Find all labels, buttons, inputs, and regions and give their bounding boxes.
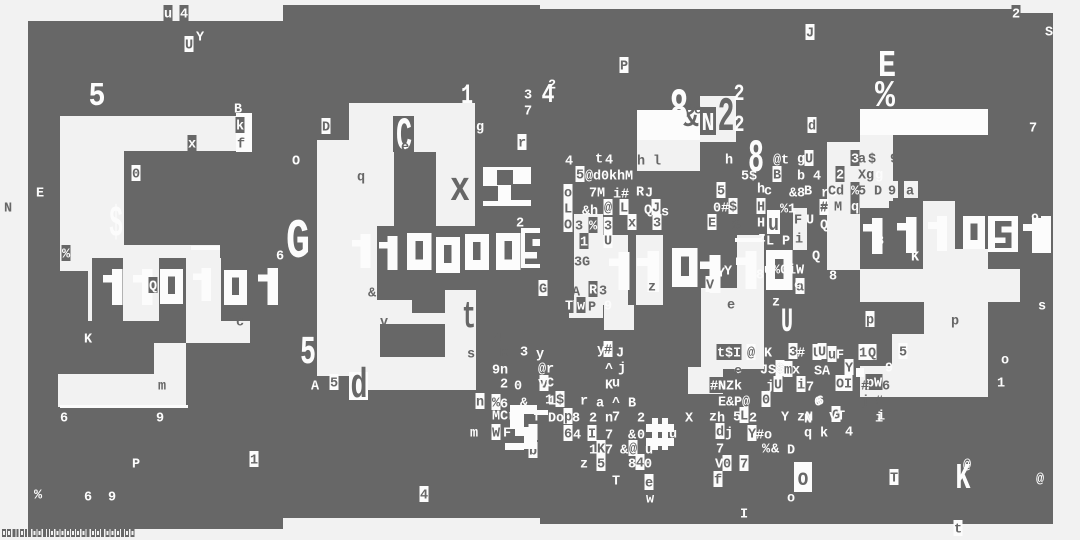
svg-text:c: c xyxy=(794,279,802,294)
svg-text:#: # xyxy=(875,395,883,410)
svg-text:T: T xyxy=(565,300,573,315)
svg-text:z: z xyxy=(772,296,780,311)
svg-text:i: i xyxy=(613,188,621,203)
svg-text:R: R xyxy=(636,186,645,201)
svg-text:B: B xyxy=(628,397,636,412)
svg-text:8: 8 xyxy=(670,81,689,142)
svg-text:Q: Q xyxy=(149,280,157,295)
svg-text:d: d xyxy=(593,170,601,185)
svg-text:O: O xyxy=(292,155,300,170)
svg-text:@: @ xyxy=(773,154,781,169)
svg-text:2: 2 xyxy=(589,412,597,427)
svg-text:3: 3 xyxy=(520,346,528,361)
svg-text:@: @ xyxy=(629,443,637,458)
svg-text:#: # xyxy=(861,380,869,395)
svg-text:6: 6 xyxy=(882,380,890,395)
svg-text:D: D xyxy=(787,444,795,459)
svg-text:e: e xyxy=(694,104,702,119)
svg-text:d: d xyxy=(351,362,368,410)
svg-text:#: # xyxy=(756,429,764,444)
svg-text:n: n xyxy=(605,412,613,427)
svg-text:Y: Y xyxy=(724,265,733,280)
svg-text:I: I xyxy=(588,428,596,443)
svg-text:i: i xyxy=(795,233,803,248)
svg-text:N: N xyxy=(804,413,812,428)
svg-text:x: x xyxy=(792,364,800,379)
svg-text:9: 9 xyxy=(890,153,898,168)
svg-text:r: r xyxy=(546,363,554,378)
svg-text:g: g xyxy=(875,169,883,184)
svg-text:L: L xyxy=(564,203,572,218)
svg-text:E: E xyxy=(708,217,716,232)
svg-text:O: O xyxy=(564,219,572,234)
svg-text:F: F xyxy=(794,214,802,229)
svg-text:s: s xyxy=(1038,300,1046,315)
svg-text:N: N xyxy=(718,380,726,395)
svg-text:$: $ xyxy=(749,170,757,185)
svg-text:g: g xyxy=(866,169,874,184)
svg-text:x: x xyxy=(628,217,636,232)
svg-text:v: v xyxy=(380,316,388,331)
svg-text:F: F xyxy=(836,349,844,364)
svg-text:o: o xyxy=(1001,354,1009,369)
svg-text:R: R xyxy=(589,284,598,299)
svg-text:E: E xyxy=(718,396,726,411)
svg-text:f: f xyxy=(237,138,245,153)
svg-text:u: u xyxy=(612,377,620,392)
svg-text:4: 4 xyxy=(605,154,613,169)
svg-text:c: c xyxy=(764,185,772,200)
svg-text:g: g xyxy=(476,121,484,136)
svg-text:q: q xyxy=(804,427,812,442)
svg-text:$: $ xyxy=(868,153,876,168)
svg-text:h: h xyxy=(637,155,645,170)
svg-text:z: z xyxy=(709,411,717,426)
svg-text:&: & xyxy=(620,444,629,459)
svg-text:r: r xyxy=(518,137,526,152)
svg-text:g: g xyxy=(797,153,805,168)
svg-text:7: 7 xyxy=(524,105,532,120)
svg-text:8: 8 xyxy=(628,458,636,473)
svg-text:i: i xyxy=(788,264,796,279)
svg-text:4: 4 xyxy=(573,429,581,444)
svg-text:M: M xyxy=(834,201,842,216)
svg-text:S: S xyxy=(1045,26,1053,41)
svg-text:L: L xyxy=(740,410,748,425)
svg-text:4: 4 xyxy=(494,332,502,347)
svg-text:2: 2 xyxy=(548,79,556,94)
svg-text:w: w xyxy=(646,493,655,508)
svg-text:m: m xyxy=(158,380,166,395)
svg-text:e: e xyxy=(727,299,735,314)
svg-text:T: T xyxy=(890,472,898,487)
svg-text:k: k xyxy=(609,170,617,185)
svg-text:U: U xyxy=(781,304,793,342)
svg-text:j: j xyxy=(766,380,774,395)
svg-text:%: % xyxy=(762,443,771,458)
svg-text:o: o xyxy=(556,412,564,427)
svg-text:7: 7 xyxy=(716,443,724,458)
svg-text:5: 5 xyxy=(717,185,725,200)
svg-text:P: P xyxy=(620,60,628,75)
svg-text:F: F xyxy=(503,427,511,442)
svg-text:H: H xyxy=(757,201,765,216)
svg-text:A: A xyxy=(311,380,320,395)
svg-text:A: A xyxy=(572,286,581,301)
svg-text:h: h xyxy=(590,205,598,220)
svg-text:Y: Y xyxy=(196,31,205,46)
svg-text:D: D xyxy=(322,121,330,136)
svg-text:W: W xyxy=(492,427,501,442)
svg-text:3: 3 xyxy=(524,89,532,104)
svg-text:M: M xyxy=(597,187,605,202)
svg-text:K: K xyxy=(84,333,93,348)
svg-text:K: K xyxy=(911,251,920,266)
svg-text:7: 7 xyxy=(806,381,814,396)
svg-text:7: 7 xyxy=(612,411,620,426)
svg-text:M: M xyxy=(492,410,500,425)
svg-text:5: 5 xyxy=(858,185,866,200)
svg-text:h: h xyxy=(617,170,625,185)
svg-text:n: n xyxy=(500,364,508,379)
svg-text:9: 9 xyxy=(108,491,116,506)
svg-text:s: s xyxy=(661,206,669,221)
svg-text:O: O xyxy=(836,378,844,393)
svg-text:5: 5 xyxy=(300,331,316,376)
svg-text:$: $ xyxy=(725,347,733,362)
svg-text:1: 1 xyxy=(548,395,556,410)
svg-text:z: z xyxy=(758,232,766,247)
svg-text:r: r xyxy=(580,395,588,410)
svg-text:t: t xyxy=(717,347,725,362)
svg-text:4: 4 xyxy=(420,489,428,504)
svg-text:2: 2 xyxy=(749,412,757,427)
svg-text:3: 3 xyxy=(599,285,607,300)
svg-text:f: f xyxy=(714,474,722,489)
svg-text:&: & xyxy=(771,443,780,458)
svg-text:t: t xyxy=(954,523,962,538)
svg-text:5: 5 xyxy=(899,346,907,361)
svg-text:B: B xyxy=(773,169,781,184)
svg-text:J: J xyxy=(616,347,624,362)
svg-text:6: 6 xyxy=(276,250,284,265)
svg-text:2: 2 xyxy=(500,378,508,393)
svg-text:t: t xyxy=(462,296,476,339)
svg-text:0: 0 xyxy=(762,394,770,409)
svg-text:h: h xyxy=(717,412,725,427)
svg-text:C: C xyxy=(500,410,508,425)
svg-text:Q: Q xyxy=(868,347,876,362)
svg-text:a: a xyxy=(858,153,866,168)
svg-text:&: & xyxy=(368,287,377,302)
svg-text:c: c xyxy=(236,316,244,331)
svg-text:G: G xyxy=(539,283,547,298)
svg-text:j: j xyxy=(725,427,733,442)
svg-text:l: l xyxy=(653,155,661,170)
svg-text:9: 9 xyxy=(492,364,500,379)
svg-text:o: o xyxy=(564,187,572,202)
svg-text:o: o xyxy=(798,466,809,492)
svg-text:v: v xyxy=(829,410,837,425)
svg-text:3: 3 xyxy=(575,220,583,235)
svg-text:q: q xyxy=(851,201,859,216)
svg-text:7: 7 xyxy=(1029,122,1037,137)
svg-text:6: 6 xyxy=(84,491,92,506)
svg-text:4: 4 xyxy=(180,8,188,23)
svg-text:i: i xyxy=(877,410,885,425)
svg-text:@: @ xyxy=(963,459,971,474)
svg-text:$: $ xyxy=(109,200,123,250)
svg-text:3: 3 xyxy=(789,346,797,361)
svg-text:0: 0 xyxy=(601,170,609,185)
svg-text:m: m xyxy=(470,427,478,442)
svg-text:e: e xyxy=(645,477,653,492)
svg-text:%: % xyxy=(589,220,598,235)
svg-text:h: h xyxy=(725,154,733,169)
svg-text:U: U xyxy=(805,153,813,168)
svg-text:9: 9 xyxy=(888,185,896,200)
svg-text:o: o xyxy=(764,429,772,444)
svg-text:@: @ xyxy=(747,347,755,362)
svg-text:0: 0 xyxy=(637,429,645,444)
svg-text:P: P xyxy=(782,235,790,250)
svg-text:%: % xyxy=(62,248,71,263)
svg-text:9: 9 xyxy=(885,362,893,377)
svg-text:j: j xyxy=(618,362,626,377)
svg-text:$: $ xyxy=(556,394,564,409)
svg-text:W: W xyxy=(796,264,805,279)
svg-text:Q: Q xyxy=(820,219,828,234)
svg-text:#: # xyxy=(797,347,805,362)
svg-text:m: m xyxy=(784,364,792,379)
svg-text:E: E xyxy=(36,187,44,202)
svg-text:7: 7 xyxy=(589,187,597,202)
svg-text:A: A xyxy=(822,365,831,380)
svg-text:i: i xyxy=(797,379,805,394)
svg-text:M: M xyxy=(625,170,633,185)
svg-text:^: ^ xyxy=(605,363,613,378)
svg-text:o: o xyxy=(787,492,795,507)
svg-text:C: C xyxy=(546,377,554,392)
svg-text:J: J xyxy=(760,364,768,379)
svg-text:U: U xyxy=(774,379,782,394)
svg-text:V: V xyxy=(715,458,724,473)
svg-text:%: % xyxy=(732,219,741,234)
svg-text:2: 2 xyxy=(1012,8,1020,23)
svg-text:d: d xyxy=(716,426,724,441)
svg-text:I: I xyxy=(844,378,852,393)
svg-text:J: J xyxy=(806,27,814,42)
svg-text:Y: Y xyxy=(781,411,790,426)
svg-text:P: P xyxy=(734,396,742,411)
svg-text:5: 5 xyxy=(330,377,338,392)
svg-text:B: B xyxy=(804,185,812,200)
svg-text:T: T xyxy=(837,410,845,425)
svg-text:%: % xyxy=(34,489,43,504)
svg-text:5: 5 xyxy=(576,169,584,184)
svg-text:s: s xyxy=(467,348,475,363)
svg-text:@: @ xyxy=(742,396,750,411)
svg-text:B: B xyxy=(234,103,242,118)
svg-text:q: q xyxy=(357,171,365,186)
svg-text:#: # xyxy=(621,188,629,203)
svg-text:Y: Y xyxy=(845,362,854,377)
svg-text:5: 5 xyxy=(741,170,749,185)
svg-text:U: U xyxy=(604,235,612,250)
svg-text:u: u xyxy=(828,349,836,364)
svg-text:J: J xyxy=(645,187,653,202)
svg-text:k: k xyxy=(734,380,742,395)
svg-text:8: 8 xyxy=(756,269,764,284)
svg-text:0: 0 xyxy=(132,168,140,183)
svg-text:Q: Q xyxy=(812,250,820,265)
svg-text:0: 0 xyxy=(723,458,731,473)
svg-text:1: 1 xyxy=(997,377,1005,392)
svg-text:p: p xyxy=(866,314,874,329)
svg-text:3: 3 xyxy=(574,256,582,271)
svg-text:3: 3 xyxy=(653,217,661,232)
svg-text:T: T xyxy=(612,475,620,490)
svg-text:S: S xyxy=(814,365,822,380)
svg-text:t: t xyxy=(781,154,789,169)
svg-text:9: 9 xyxy=(604,300,612,315)
svg-text:D: D xyxy=(874,185,882,200)
svg-text:I: I xyxy=(733,347,741,362)
svg-text:7: 7 xyxy=(740,458,748,473)
svg-text:t: t xyxy=(595,153,603,168)
svg-text:x: x xyxy=(450,165,470,213)
svg-text:d: d xyxy=(836,185,844,200)
svg-text:$: $ xyxy=(729,201,737,216)
svg-text:y: y xyxy=(597,344,605,359)
svg-text:#: # xyxy=(604,344,612,359)
svg-text:2: 2 xyxy=(836,169,844,184)
svg-text:s: s xyxy=(748,268,756,283)
svg-text:8: 8 xyxy=(797,187,805,202)
svg-text:a: a xyxy=(596,397,604,412)
svg-text:6: 6 xyxy=(814,396,822,411)
svg-text:1: 1 xyxy=(461,81,473,112)
svg-text:%: % xyxy=(875,75,895,118)
svg-text:4: 4 xyxy=(813,170,821,185)
svg-text:5: 5 xyxy=(89,78,106,115)
svg-text:P: P xyxy=(132,458,140,473)
svg-text:L: L xyxy=(620,202,628,217)
svg-text:D: D xyxy=(548,412,556,427)
svg-text:d: d xyxy=(808,120,816,135)
svg-text:8: 8 xyxy=(876,235,884,250)
svg-text:8: 8 xyxy=(572,412,580,427)
svg-text:4: 4 xyxy=(845,426,853,441)
svg-text:R: R xyxy=(500,347,509,362)
svg-text:u: u xyxy=(768,212,779,237)
svg-text:z: z xyxy=(580,458,588,473)
svg-text:9: 9 xyxy=(156,412,164,427)
svg-text:@: @ xyxy=(585,170,593,185)
svg-text:K: K xyxy=(764,347,773,362)
svg-text:4: 4 xyxy=(636,457,644,472)
svg-text:a: a xyxy=(906,185,914,200)
svg-text:b: b xyxy=(797,170,805,185)
svg-text:C: C xyxy=(828,185,836,200)
svg-text:j: j xyxy=(861,395,869,410)
svg-text:@: @ xyxy=(1036,473,1044,488)
svg-text:7: 7 xyxy=(605,444,613,459)
svg-text:x: x xyxy=(188,138,196,153)
svg-text:5: 5 xyxy=(597,458,605,473)
svg-text:5: 5 xyxy=(733,411,741,426)
svg-text:L: L xyxy=(766,235,774,250)
svg-text:N: N xyxy=(4,202,12,217)
svg-text:G: G xyxy=(286,210,310,274)
svg-text:#: # xyxy=(710,380,718,395)
svg-text:H: H xyxy=(757,217,765,232)
svg-text:Q: Q xyxy=(644,204,652,219)
svg-text:6: 6 xyxy=(564,428,572,443)
svg-text:1: 1 xyxy=(250,454,258,469)
svg-text:Z: Z xyxy=(726,380,734,395)
svg-text:1: 1 xyxy=(859,347,867,362)
svg-text:0: 0 xyxy=(644,458,652,473)
svg-text:n: n xyxy=(476,396,484,411)
svg-text:2: 2 xyxy=(734,81,745,107)
svg-text:&: & xyxy=(628,429,637,444)
svg-text:y: y xyxy=(536,348,544,363)
svg-text:S: S xyxy=(768,364,776,379)
svg-text:V: V xyxy=(706,279,715,294)
svg-text:U: U xyxy=(806,214,814,229)
svg-text:e: e xyxy=(734,365,742,380)
svg-text:z: z xyxy=(648,281,656,296)
svg-text:N: N xyxy=(702,108,715,138)
svg-text:h: h xyxy=(757,183,765,198)
svg-text:e: e xyxy=(401,141,409,156)
svg-text:k: k xyxy=(236,120,244,135)
svg-text:#: # xyxy=(820,201,828,216)
svg-text:1: 1 xyxy=(589,444,597,459)
svg-text:U: U xyxy=(818,346,826,361)
svg-text:K: K xyxy=(605,379,614,394)
svg-text:u: u xyxy=(764,264,772,279)
svg-text:U: U xyxy=(185,39,193,54)
svg-text:2: 2 xyxy=(734,112,745,138)
svg-text:X: X xyxy=(685,412,694,427)
svg-text:P: P xyxy=(588,301,596,316)
svg-text:2: 2 xyxy=(718,91,735,145)
svg-text:1: 1 xyxy=(580,236,588,251)
svg-text:4: 4 xyxy=(565,155,573,170)
svg-text:$: $ xyxy=(776,363,784,378)
svg-text:k: k xyxy=(820,427,828,442)
svg-text:p: p xyxy=(564,411,572,426)
svg-text:2: 2 xyxy=(637,412,645,427)
svg-text:6: 6 xyxy=(60,412,68,427)
svg-text:p: p xyxy=(951,315,959,330)
svg-text:w: w xyxy=(577,300,586,315)
svg-text:v: v xyxy=(538,377,546,392)
svg-text:0: 0 xyxy=(514,380,522,395)
svg-text:^: ^ xyxy=(612,397,620,412)
svg-text:7: 7 xyxy=(605,429,613,444)
svg-text:8: 8 xyxy=(829,270,837,285)
svg-text:I: I xyxy=(740,508,748,523)
svg-text:0: 0 xyxy=(713,202,721,217)
svg-text:G: G xyxy=(582,256,590,271)
svg-text:0: 0 xyxy=(780,264,788,279)
svg-text:9: 9 xyxy=(1031,213,1039,228)
svg-text:@: @ xyxy=(604,202,612,217)
svg-text:@: @ xyxy=(538,363,546,378)
